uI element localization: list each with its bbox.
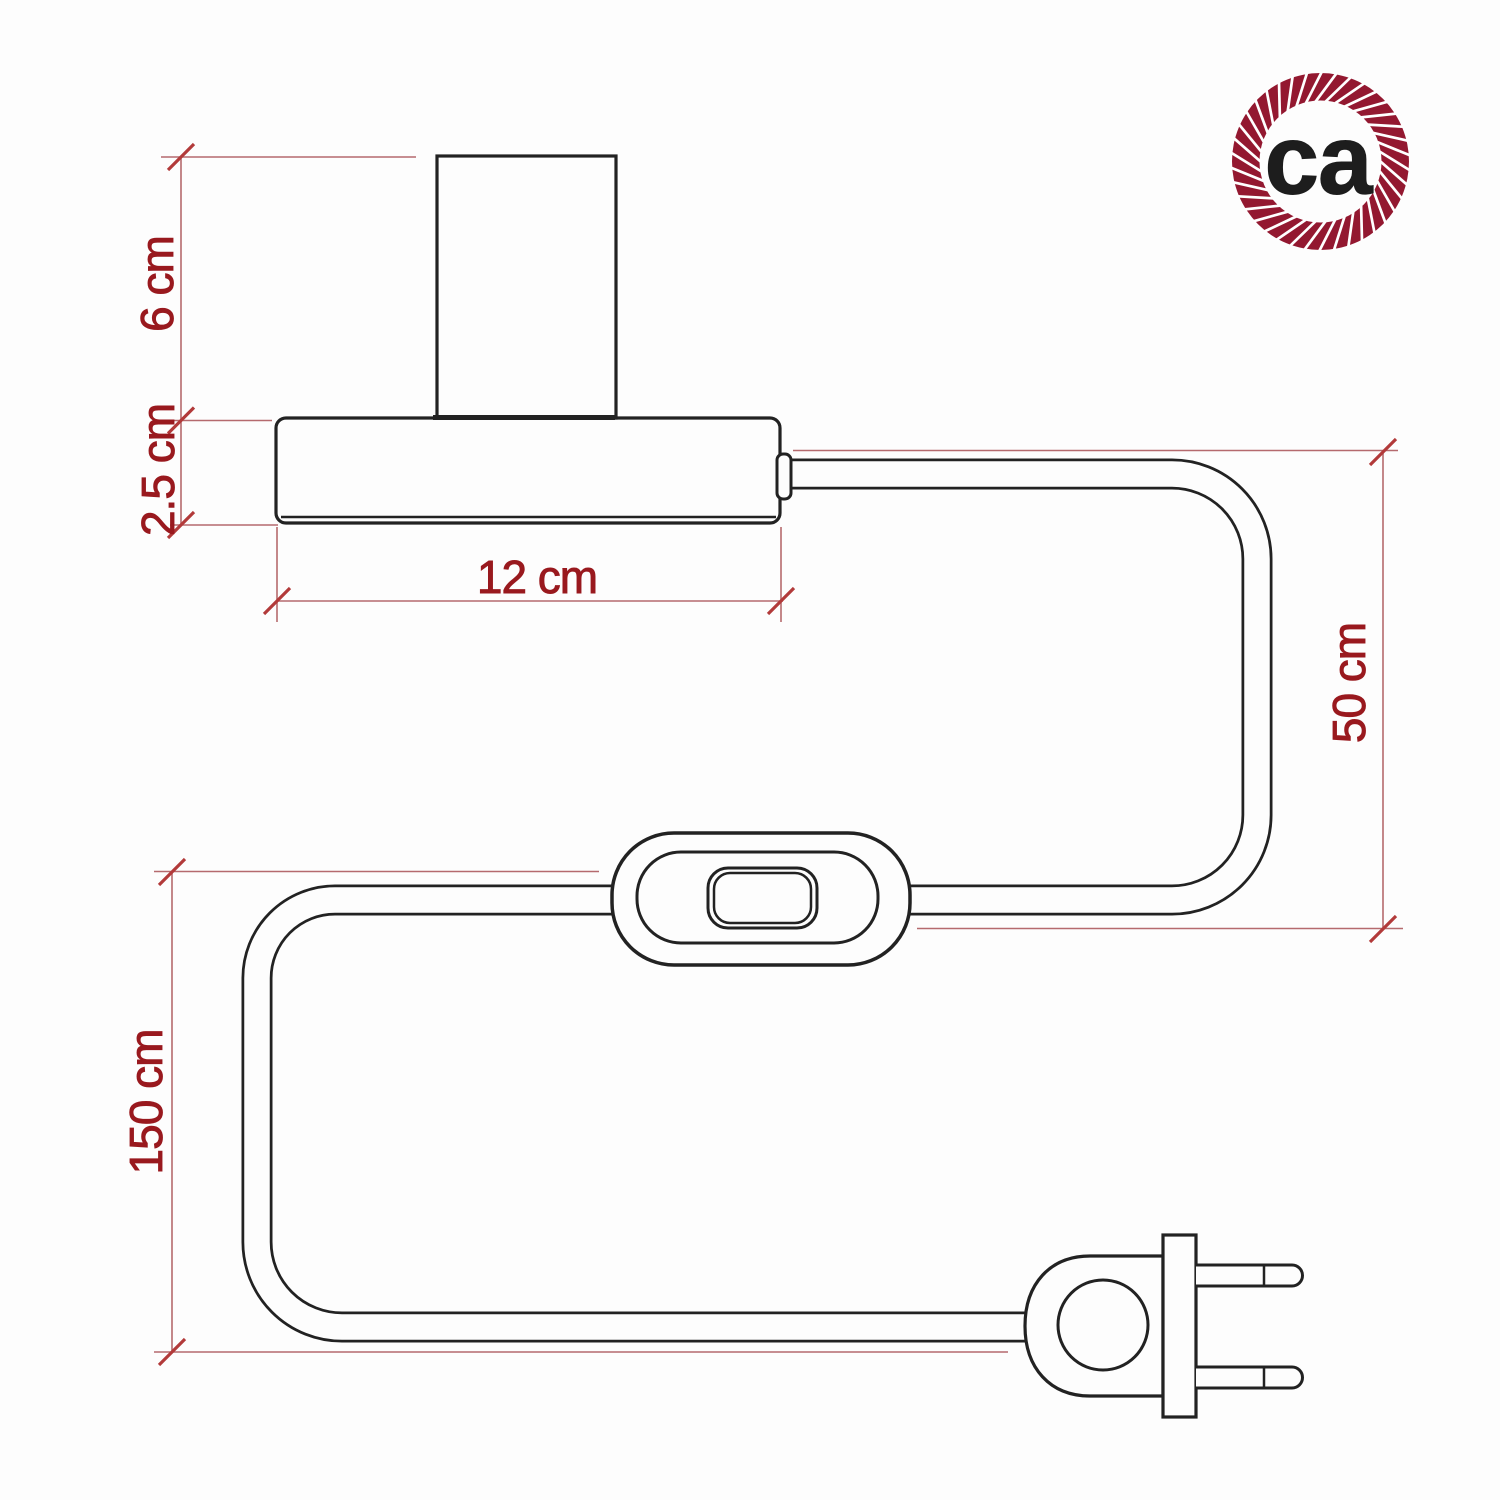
- svg-text:50 cm: 50 cm: [1323, 623, 1375, 743]
- svg-text:ca: ca: [1264, 105, 1374, 215]
- svg-text:12 cm: 12 cm: [477, 551, 597, 603]
- svg-text:150 cm: 150 cm: [120, 1030, 172, 1175]
- svg-text:6 cm: 6 cm: [131, 236, 183, 332]
- svg-text:2.5 cm: 2.5 cm: [132, 404, 184, 536]
